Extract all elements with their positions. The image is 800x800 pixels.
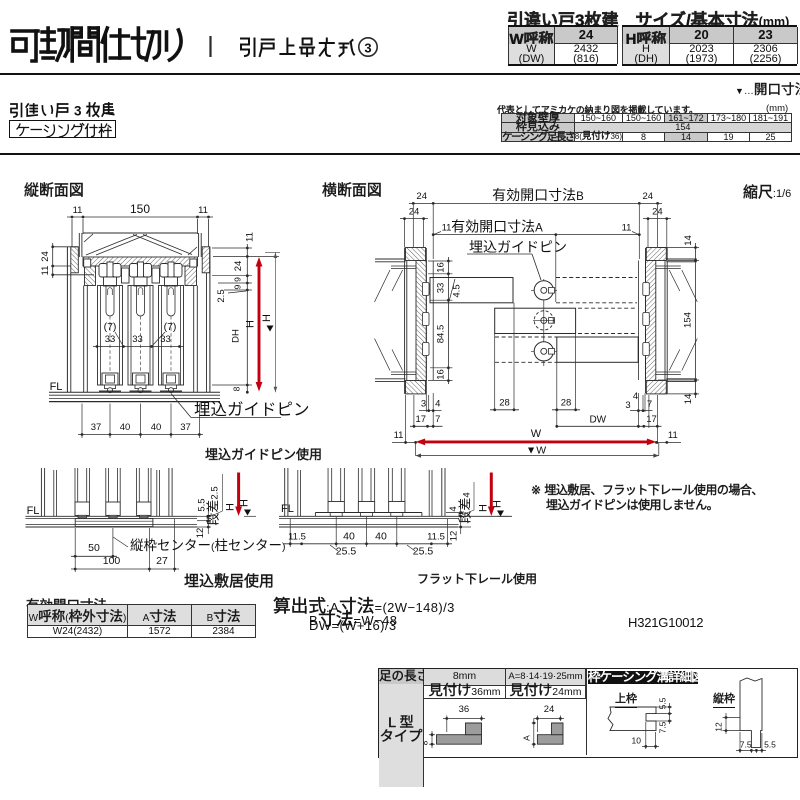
svg-text:33: 33 xyxy=(132,334,143,345)
svg-text:FL: FL xyxy=(50,381,63,393)
svg-text:12: 12 xyxy=(195,528,206,539)
svg-text:段差2.5: 段差2.5 xyxy=(206,486,221,525)
svg-text:24: 24 xyxy=(416,191,427,202)
svg-text:8: 8 xyxy=(232,386,242,391)
svg-text:FL: FL xyxy=(281,503,294,515)
svg-text:7: 7 xyxy=(435,414,440,425)
svg-text:16: 16 xyxy=(436,262,447,273)
svg-text:11: 11 xyxy=(668,430,678,441)
svg-text:154: 154 xyxy=(683,312,694,328)
svg-text:3: 3 xyxy=(74,104,82,119)
svg-text:24: 24 xyxy=(233,261,244,272)
svg-text:40: 40 xyxy=(375,531,387,543)
svg-text:84.5: 84.5 xyxy=(436,325,447,344)
svg-text:▼W: ▼W xyxy=(526,445,546,457)
svg-text:24: 24 xyxy=(643,191,654,202)
svg-text:9: 9 xyxy=(233,277,243,282)
svg-text:H: H xyxy=(492,500,504,508)
svg-text:有効開口寸法B: 有効開口寸法B xyxy=(492,187,584,203)
svg-text:3: 3 xyxy=(421,398,426,409)
svg-text:有効開口寸法A: 有効開口寸法A xyxy=(451,219,543,235)
svg-text:33: 33 xyxy=(436,283,447,294)
svg-text:9: 9 xyxy=(233,284,243,289)
svg-text:H: H xyxy=(477,504,489,512)
svg-text:33: 33 xyxy=(105,334,116,345)
svg-text:(7): (7) xyxy=(104,321,117,333)
svg-text:3: 3 xyxy=(625,400,630,411)
svg-text:150: 150 xyxy=(130,202,150,216)
svg-text:100: 100 xyxy=(103,555,121,567)
svg-text:段差4: 段差4 xyxy=(458,492,473,523)
svg-text:28: 28 xyxy=(499,398,510,409)
svg-text:24: 24 xyxy=(40,251,51,262)
svg-text:17: 17 xyxy=(416,414,427,425)
svg-text:37: 37 xyxy=(180,422,191,433)
svg-text:4: 4 xyxy=(435,398,440,409)
svg-text:24: 24 xyxy=(409,206,420,217)
svg-text:25.5: 25.5 xyxy=(413,546,434,558)
svg-text:11.5: 11.5 xyxy=(427,532,445,543)
svg-text:H: H xyxy=(239,499,251,507)
svg-text:14: 14 xyxy=(683,235,694,246)
svg-text:11: 11 xyxy=(394,430,404,441)
svg-text:25.5: 25.5 xyxy=(336,546,357,558)
svg-text:(7): (7) xyxy=(164,321,177,333)
svg-text:11: 11 xyxy=(198,205,208,216)
svg-text:埋込ガイドピン: 埋込ガイドピン xyxy=(469,239,567,255)
svg-text:3: 3 xyxy=(364,41,371,56)
svg-text:14: 14 xyxy=(683,394,694,405)
svg-text:33: 33 xyxy=(160,334,171,345)
svg-text:11: 11 xyxy=(622,223,632,234)
svg-text:40: 40 xyxy=(151,422,162,433)
svg-text:11: 11 xyxy=(73,205,83,216)
svg-text:DH: DH xyxy=(231,329,242,343)
svg-text:W: W xyxy=(531,428,542,440)
svg-text:H: H xyxy=(245,320,257,328)
svg-text:H: H xyxy=(225,503,237,511)
svg-text:27: 27 xyxy=(156,555,168,567)
svg-text:40: 40 xyxy=(343,531,355,543)
svg-text:37: 37 xyxy=(91,422,102,433)
svg-text:16: 16 xyxy=(436,369,447,380)
svg-text:11.5: 11.5 xyxy=(288,532,306,543)
svg-text:DW: DW xyxy=(589,414,606,425)
svg-text:11: 11 xyxy=(245,232,256,242)
svg-text:4.5: 4.5 xyxy=(452,284,463,297)
svg-text:11: 11 xyxy=(442,223,452,234)
svg-text:4: 4 xyxy=(633,391,638,402)
svg-text:12: 12 xyxy=(449,531,460,542)
svg-text:40: 40 xyxy=(120,422,131,433)
svg-text:11: 11 xyxy=(40,266,51,276)
svg-text:2.5: 2.5 xyxy=(216,289,227,302)
svg-text:7: 7 xyxy=(647,399,652,410)
svg-text:埋込ガイドピン: 埋込ガイドピン xyxy=(194,400,310,419)
svg-text:28: 28 xyxy=(561,398,572,409)
svg-text:縦枠センター(柱センター): 縦枠センター(柱センター) xyxy=(130,538,286,553)
svg-text:H: H xyxy=(261,314,273,322)
svg-text:FL: FL xyxy=(27,505,40,517)
svg-text:50: 50 xyxy=(88,542,100,554)
svg-text:17: 17 xyxy=(646,414,657,425)
